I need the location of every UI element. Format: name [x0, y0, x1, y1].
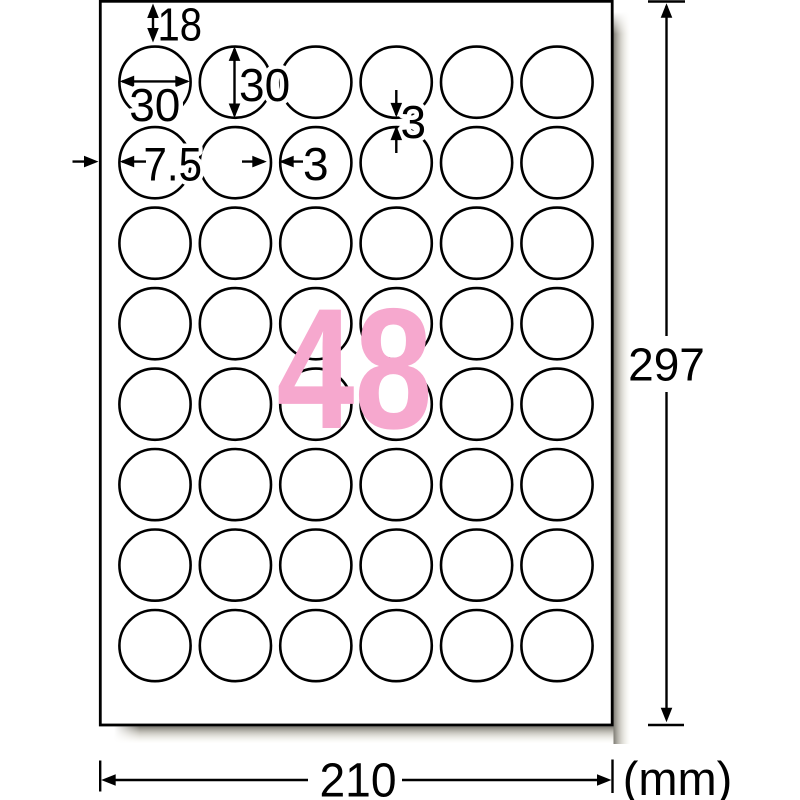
svg-text:30: 30	[239, 59, 290, 111]
svg-text:18: 18	[158, 0, 203, 51]
svg-text:7.5: 7.5	[144, 137, 203, 190]
svg-text:3: 3	[401, 96, 427, 148]
svg-text:30: 30	[129, 79, 180, 131]
svg-text:48: 48	[277, 273, 433, 465]
svg-text:3: 3	[303, 138, 329, 190]
svg-text:210: 210	[320, 755, 397, 800]
svg-text:(mm): (mm)	[623, 752, 733, 800]
svg-text:297: 297	[628, 338, 705, 390]
